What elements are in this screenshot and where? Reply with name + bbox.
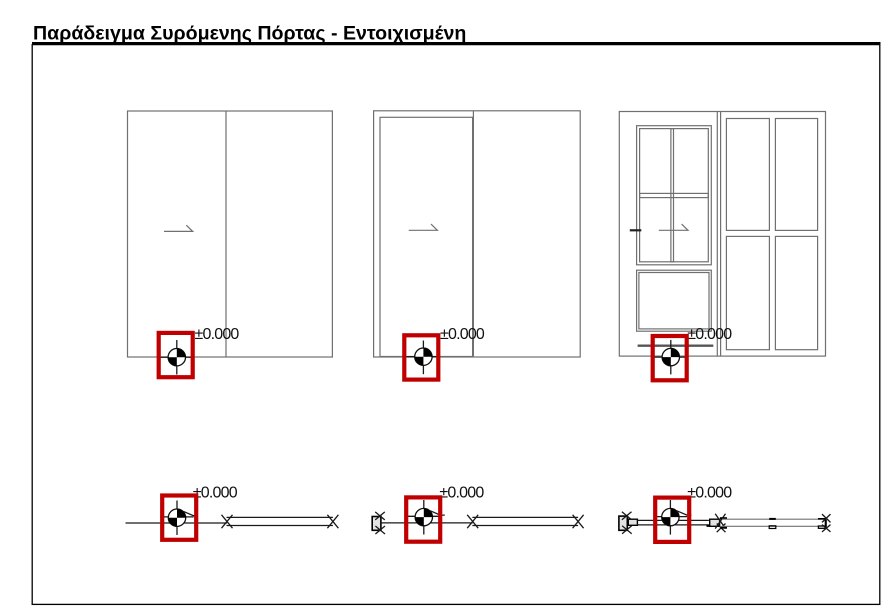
- svg-text:±0.000: ±0.000: [687, 326, 732, 343]
- svg-text:±0.000: ±0.000: [195, 326, 240, 343]
- svg-text:±0.000: ±0.000: [687, 485, 732, 502]
- svg-text:±0.000: ±0.000: [439, 485, 484, 502]
- svg-text:±0.000: ±0.000: [193, 485, 238, 502]
- svg-text:Παράδειγμα Συρόμενης Πόρτας -: Παράδειγμα Συρόμενης Πόρτας - Εντοιχισμέ…: [33, 23, 466, 45]
- svg-text:±0.000: ±0.000: [440, 326, 485, 343]
